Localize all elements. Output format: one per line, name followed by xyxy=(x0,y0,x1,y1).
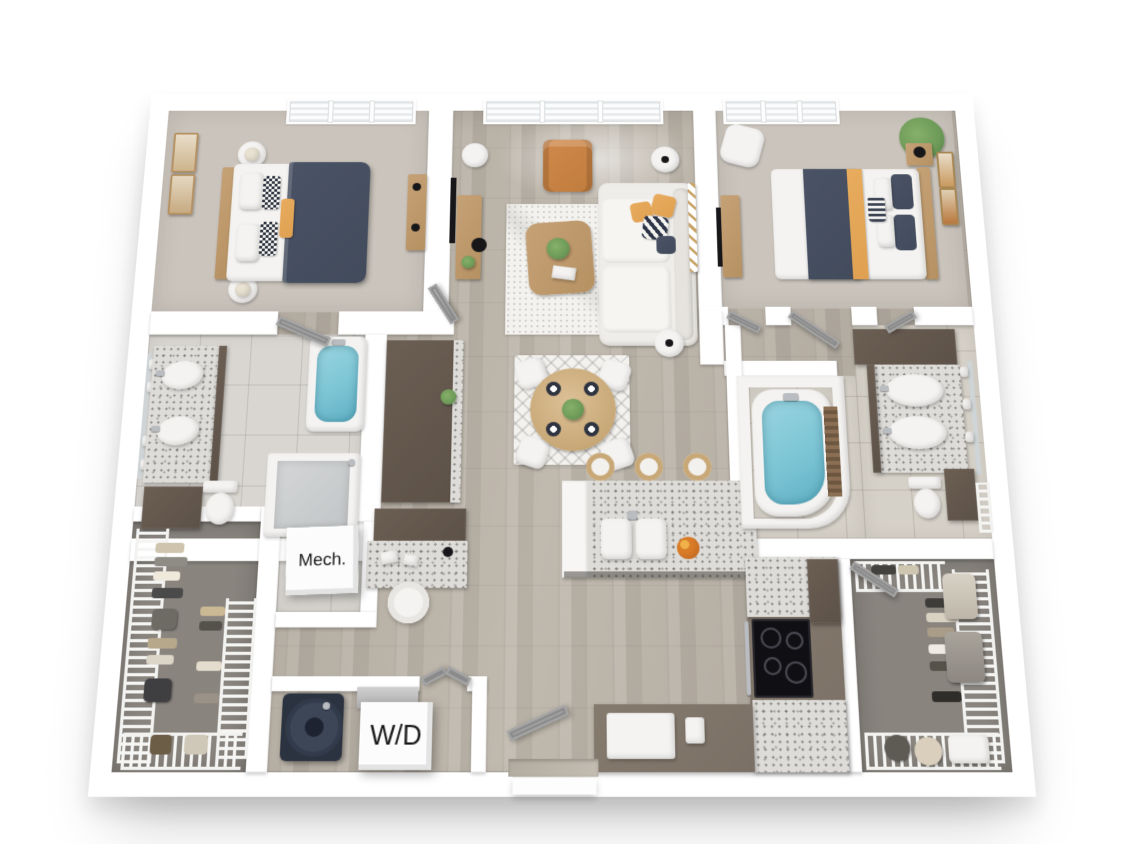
wall-under-bedroom1-left xyxy=(149,311,278,334)
shower-floor xyxy=(274,461,351,529)
bath1-lower-cabinet xyxy=(141,487,203,529)
sconce-light xyxy=(960,367,969,377)
kitchen-corner-counter xyxy=(752,700,849,772)
bedroom1-window xyxy=(286,99,416,124)
washer-dryer-cube: W/D xyxy=(358,702,433,770)
faucet xyxy=(156,370,165,376)
bath1-tub-water xyxy=(314,346,359,422)
closet-basket xyxy=(184,735,209,755)
clothing-item xyxy=(151,588,183,598)
clothing-item xyxy=(194,693,220,703)
window-mullion xyxy=(761,101,766,121)
wall-art-frame xyxy=(167,174,195,214)
clothing-item xyxy=(153,571,181,580)
clothing-item xyxy=(199,621,223,630)
table-centerpiece xyxy=(562,399,584,420)
wall-under-bedroom2-c xyxy=(851,307,878,325)
window-mullion xyxy=(797,101,802,121)
faucet xyxy=(151,426,161,432)
tub-faucet xyxy=(783,393,799,401)
sconce-light xyxy=(965,432,974,443)
bed1-checkered-pillow xyxy=(259,222,278,256)
faucet xyxy=(883,428,892,434)
kitchen-pantry-cabinet xyxy=(807,559,841,623)
window-mullion xyxy=(328,101,333,121)
kitchen-sink xyxy=(635,519,666,560)
burner xyxy=(763,657,782,675)
sconce-light xyxy=(962,399,971,410)
place-setting xyxy=(584,382,599,396)
place-setting xyxy=(584,422,599,437)
bath2-side-cabinet xyxy=(944,469,979,521)
bath2-upper-cabinet-run xyxy=(852,329,957,365)
bed1-duvet xyxy=(282,162,371,283)
bed1-accent-pillow xyxy=(279,199,295,238)
kitchen-faucet xyxy=(627,511,637,520)
wall-art-frame xyxy=(936,152,956,188)
bed2-striped-pillow xyxy=(867,197,886,222)
entry-threshold xyxy=(508,759,598,777)
wall-bedroom1-living xyxy=(423,111,453,316)
burner xyxy=(760,627,782,648)
coffee-table-plant xyxy=(547,238,570,260)
bed1-pillow xyxy=(235,224,261,262)
window-mullion xyxy=(540,101,544,121)
bedroom2-dresser xyxy=(720,195,742,277)
wall-art-frame xyxy=(171,133,199,173)
wall-bath2-kitchen xyxy=(732,539,994,559)
bar-stool xyxy=(683,453,712,481)
wall-under-bedroom2-d xyxy=(914,307,974,325)
clothing-item xyxy=(871,565,896,574)
closet-bag xyxy=(143,678,172,702)
clothing-item xyxy=(155,543,185,553)
burner xyxy=(785,632,804,650)
toilet-tank xyxy=(203,481,238,493)
sofa-cushion xyxy=(603,267,672,333)
desk-upper-cabinet xyxy=(373,509,466,541)
island-waterfall-end xyxy=(562,481,589,578)
fruit-bowl xyxy=(677,537,700,559)
counter-appliance-white xyxy=(607,713,676,759)
apartment-3d-floorplan: Mech. W/D xyxy=(88,94,1036,797)
tub-faucet xyxy=(332,339,346,345)
sofa-lamp-finial xyxy=(661,156,669,163)
clothing-item xyxy=(154,557,188,566)
kitchen-sink xyxy=(601,519,632,560)
wall-art-frame xyxy=(939,188,959,225)
closet-basket xyxy=(149,735,172,755)
floorplan-render: Mech. W/D xyxy=(0,0,1125,844)
bed2-navy-pillow xyxy=(890,174,914,209)
sofa-lamp-finial xyxy=(665,339,673,346)
clothing-item xyxy=(932,691,962,702)
cooktop xyxy=(751,619,813,698)
suitcase xyxy=(942,573,979,619)
wall-under-bedroom1-right xyxy=(338,311,454,334)
table-lamp-black xyxy=(913,147,926,158)
coffee-maker xyxy=(685,717,705,743)
place-setting xyxy=(546,382,561,396)
bed1-pillow xyxy=(239,173,264,210)
living-window xyxy=(483,99,663,124)
window-mullion xyxy=(598,101,602,121)
place-setting xyxy=(546,422,561,437)
clothing-item xyxy=(898,565,919,574)
sofa-navy-pillow xyxy=(656,236,676,254)
clothing-item xyxy=(146,655,174,665)
storage-bin xyxy=(947,735,990,764)
window-mullion xyxy=(370,101,375,121)
entry-step xyxy=(512,777,596,795)
burner xyxy=(785,661,808,683)
hall-tall-cabinets xyxy=(381,340,456,502)
mech-label: Mech. xyxy=(298,549,346,571)
faucet xyxy=(880,385,889,391)
wd-label: W/D xyxy=(369,720,422,752)
bedroom2-window xyxy=(723,99,840,124)
island-cabinet-shadow xyxy=(564,571,756,577)
leather-armchair xyxy=(543,140,593,192)
bar-stool xyxy=(586,453,614,481)
toilet-tank xyxy=(908,477,941,489)
wall-vestibule-left xyxy=(699,310,724,364)
closet-bag xyxy=(151,609,178,630)
bar-stool xyxy=(634,453,663,481)
bath2-tub-water xyxy=(761,401,826,505)
bed1-checkered-pillow xyxy=(262,176,281,209)
clothing-item xyxy=(196,661,222,671)
mech-closet-cube: Mech. xyxy=(286,525,359,595)
wall-laundry-right xyxy=(471,676,487,772)
wall-mech-bottom xyxy=(275,612,377,628)
suitcase xyxy=(944,632,986,683)
clothing-item xyxy=(200,607,226,616)
bed2-navy-pillow xyxy=(893,215,917,251)
clothing-item xyxy=(147,638,177,649)
